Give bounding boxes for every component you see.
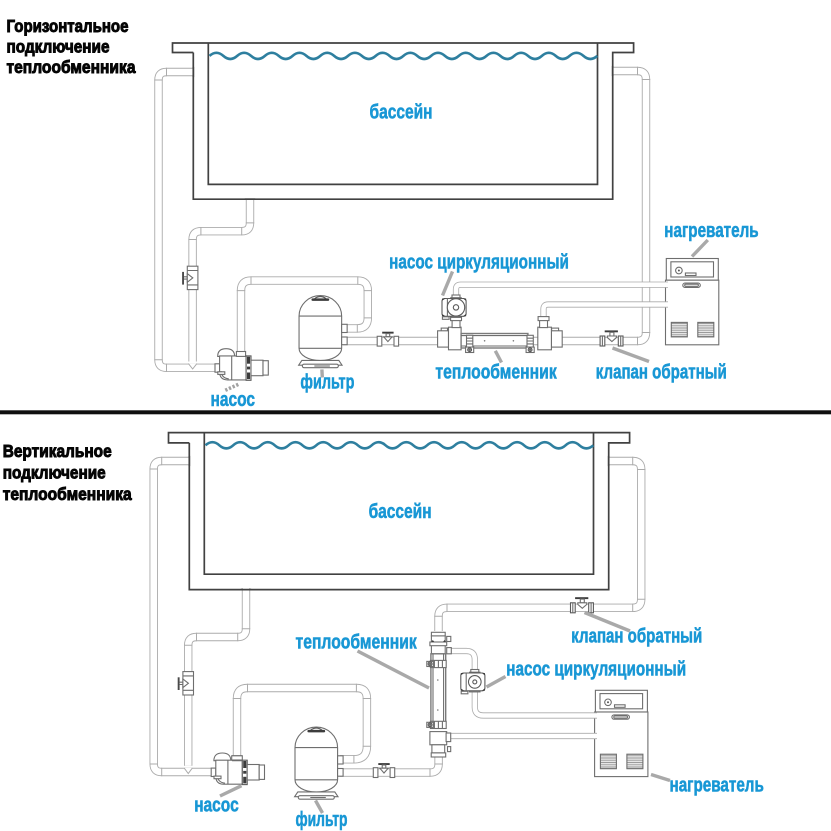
svg-text:фильтр: фильтр xyxy=(300,372,354,394)
svg-text:насос циркуляционный: насос циркуляционный xyxy=(506,659,686,681)
svg-text:теплообменника: теплообменника xyxy=(7,57,136,77)
svg-text:подключение: подключение xyxy=(7,37,110,57)
svg-text:насос: насос xyxy=(194,794,239,816)
svg-text:теплообменника: теплообменника xyxy=(3,484,132,504)
svg-text:насос: насос xyxy=(211,389,256,411)
svg-text:подключение: подключение xyxy=(3,463,106,483)
svg-text:бассейн: бассейн xyxy=(370,102,433,124)
svg-text:бассейн: бассейн xyxy=(369,501,432,523)
svg-text:насос циркуляционный: насос циркуляционный xyxy=(389,252,569,274)
svg-text:нагреватель: нагреватель xyxy=(670,775,764,797)
svg-text:фильтр: фильтр xyxy=(296,809,348,831)
svg-text:теплообменник: теплообменник xyxy=(435,361,557,383)
svg-text:нагреватель: нагреватель xyxy=(664,220,758,242)
svg-text:Вертикальное: Вертикальное xyxy=(3,441,112,461)
svg-text:Горизонтальное: Горизонтальное xyxy=(7,16,129,36)
svg-text:теплообменник: теплообменник xyxy=(296,632,418,654)
svg-text:клапан обратный: клапан обратный xyxy=(571,625,702,647)
svg-text:клапан обратный: клапан обратный xyxy=(596,361,727,383)
